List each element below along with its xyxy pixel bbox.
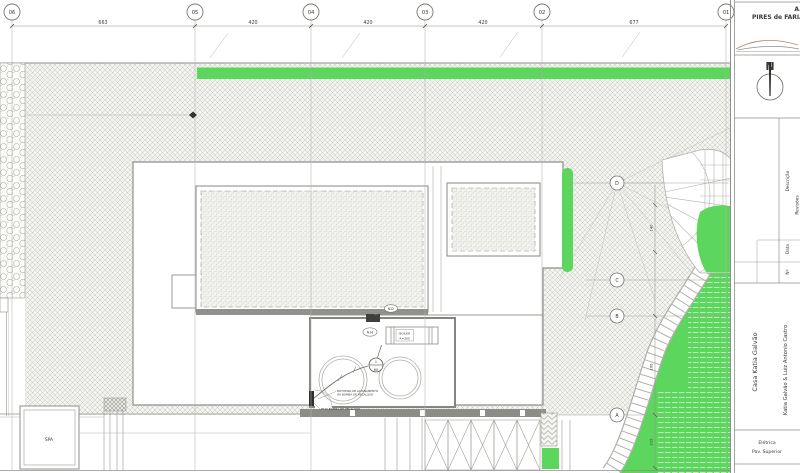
dim-420-2: 420 <box>363 20 372 26</box>
col-marker-03: 03 <box>422 10 429 16</box>
col-marker-01: 01 <box>723 10 730 16</box>
chimney <box>172 275 196 308</box>
dim-677: 677 <box>629 20 638 26</box>
tag-n12: N12 <box>388 307 394 311</box>
project-name: Casa Katia Galvão <box>751 332 759 391</box>
revisions-col-no: Nº <box>785 269 790 274</box>
revisions-col-date: Data <box>785 244 790 254</box>
col-marker-04: 04 <box>308 10 315 16</box>
dim-663: 663 <box>98 20 107 26</box>
note-botoeira-line2: DA BOMBA DE RECALQUE <box>337 393 373 397</box>
roof-right-stipple <box>452 188 535 251</box>
wall-segment <box>366 314 380 322</box>
tag-n14: N14 <box>367 330 373 334</box>
col-marker-06: 06 <box>9 10 16 16</box>
note-bomba: PT P/ BOMBA DE RECALQUE <box>321 407 360 411</box>
revisions-title: Revisões <box>795 195 800 215</box>
architectural-drawing-sheet: BOILER R=300 N14 N12 1 60 <box>0 0 800 473</box>
client-name: Katia Galvão & Luiz Antonio Castro <box>783 325 789 415</box>
spa-label: SPA <box>45 437 53 443</box>
boiler-radius-label: R=300 <box>400 337 410 341</box>
drawing-area: BOILER R=300 N14 N12 1 60 <box>0 20 765 473</box>
spa: SPA <box>20 406 79 469</box>
row-marker-d: D <box>615 181 619 187</box>
grass-strip-top <box>197 68 730 80</box>
site-plan-svg: BOILER R=300 N14 N12 1 60 <box>0 0 800 473</box>
dim-140: 140 <box>650 224 654 232</box>
company-name-line1: A.A <box>794 6 800 13</box>
grass-strip-building <box>562 168 573 272</box>
col-marker-05: 05 <box>192 10 199 16</box>
company-name-line2: PIRES de FARIA <box>752 14 800 21</box>
outlet-circuit-number: 1 <box>375 360 377 364</box>
col-marker-02: 02 <box>539 10 546 16</box>
dim-420-3: 420 <box>478 20 487 26</box>
hatched-pier <box>104 398 126 411</box>
boiler-label: BOILER <box>399 332 410 336</box>
dim-166: 166 <box>650 363 654 371</box>
boiler: BOILER R=300 <box>386 327 438 344</box>
lawn-square-bottom <box>542 448 559 469</box>
outlet-height: 60 <box>374 368 378 372</box>
machine-room: BOILER R=300 N14 N12 1 60 <box>309 305 455 411</box>
roof-left-stipple <box>201 191 423 307</box>
dim-420-1: 420 <box>248 20 257 26</box>
chevron-strip <box>541 413 557 446</box>
sheet-floor: Pav. Superior <box>752 449 782 455</box>
outlet-symbol: 1 60 <box>369 358 383 372</box>
dim-215: 215 <box>650 439 654 446</box>
sheet-discipline: Elétrica <box>758 439 775 446</box>
row-marker-b: B <box>615 314 618 320</box>
revisions-col-desc: Descrição <box>785 170 790 191</box>
